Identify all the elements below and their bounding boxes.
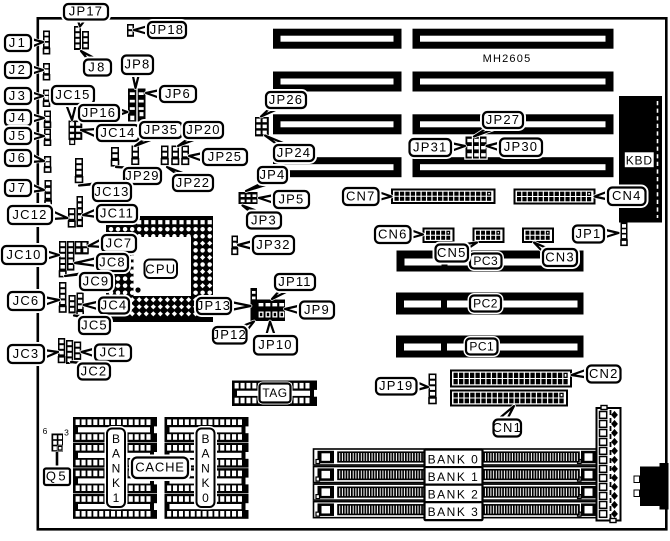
svg-text:J3: J3 [9,88,28,103]
svg-text:CN1: CN1 [492,420,522,435]
svg-text:JC8: JC8 [99,254,126,269]
svg-text:BANK 3: BANK 3 [428,505,480,519]
svg-text:BANK 0: BANK 0 [428,452,480,466]
svg-text:6: 6 [43,426,48,436]
svg-text:JP29: JP29 [125,168,159,183]
svg-text:A: A [201,447,209,461]
svg-text:J5: J5 [9,128,28,143]
svg-text:JP1: JP1 [575,226,601,241]
svg-text:1: 1 [113,491,120,505]
svg-text:CN3: CN3 [545,249,575,264]
svg-text:JC5: JC5 [81,317,108,332]
svg-text:PC2: PC2 [473,296,498,310]
svg-text:J1: J1 [9,35,28,50]
svg-text:TAG: TAG [262,386,287,400]
svg-text:JP4: JP4 [259,167,285,182]
svg-text:JP26: JP26 [269,92,303,107]
svg-text:BANK 1: BANK 1 [428,470,480,484]
svg-text:JC1: JC1 [100,345,127,360]
svg-text:CACHE: CACHE [135,460,185,475]
svg-text:JC13: JC13 [94,184,129,199]
svg-text:JP5: JP5 [278,191,304,206]
svg-text:JP32: JP32 [256,237,290,252]
svg-text:JP19: JP19 [379,378,413,393]
svg-text:N: N [201,461,210,475]
svg-text:J4: J4 [9,110,28,125]
svg-text:CN4: CN4 [612,188,642,203]
svg-text:Q5: Q5 [46,469,68,484]
svg-text:PC1: PC1 [469,339,494,353]
svg-text:JC4: JC4 [101,297,128,312]
svg-text:J8: J8 [88,59,107,74]
svg-text:JP35: JP35 [144,122,178,137]
svg-text:JP10: JP10 [258,337,292,352]
svg-text:CN7: CN7 [346,188,376,203]
svg-text:B: B [112,432,120,446]
svg-text:J6: J6 [9,150,28,165]
svg-text:JP25: JP25 [208,149,242,164]
svg-text:JP18: JP18 [150,22,184,37]
svg-text:K: K [201,476,209,490]
svg-text:JP9: JP9 [304,302,330,317]
svg-text:JC11: JC11 [100,205,134,220]
svg-text:JC6: JC6 [13,293,40,308]
svg-text:MH2605: MH2605 [483,53,532,65]
svg-text:JC15: JC15 [55,87,90,102]
svg-text:CN5: CN5 [437,245,467,260]
svg-text:JP16: JP16 [82,105,116,120]
svg-text:0: 0 [202,491,209,505]
svg-text:CPU: CPU [145,262,176,277]
svg-text:JP11: JP11 [278,274,311,289]
svg-text:PC3: PC3 [473,254,498,268]
svg-text:JP13: JP13 [197,298,231,313]
svg-text:J7: J7 [9,180,28,195]
svg-text:JC10: JC10 [6,247,41,262]
svg-text:B: B [201,432,209,446]
svg-text:JP20: JP20 [186,122,220,137]
svg-text:JP6: JP6 [165,86,191,101]
svg-text:CN2: CN2 [589,366,619,381]
svg-text:JP8: JP8 [124,57,150,72]
svg-text:CN6: CN6 [378,226,408,241]
svg-text:JP17: JP17 [69,4,103,19]
svg-text:JC3: JC3 [13,346,40,361]
svg-text:JP30: JP30 [504,139,538,154]
svg-text:A: A [112,447,120,461]
svg-text:JC9: JC9 [83,273,110,288]
svg-text:3: 3 [64,428,69,438]
svg-text:N: N [112,461,121,475]
svg-text:JP31: JP31 [413,139,447,154]
svg-text:JP12: JP12 [213,327,247,342]
svg-text:J2: J2 [9,62,28,77]
svg-text:JC2: JC2 [81,363,108,378]
svg-text:JC14: JC14 [100,125,135,140]
svg-text:JP27: JP27 [486,112,520,127]
svg-text:K: K [112,476,120,490]
svg-text:JC12: JC12 [12,207,47,222]
svg-text:JP3: JP3 [251,212,277,227]
svg-text:JC7: JC7 [106,235,133,250]
svg-text:BANK 2: BANK 2 [428,487,480,501]
svg-text:JP22: JP22 [176,175,210,190]
svg-text:JP24: JP24 [277,145,311,160]
svg-text:KBD: KBD [626,153,653,167]
